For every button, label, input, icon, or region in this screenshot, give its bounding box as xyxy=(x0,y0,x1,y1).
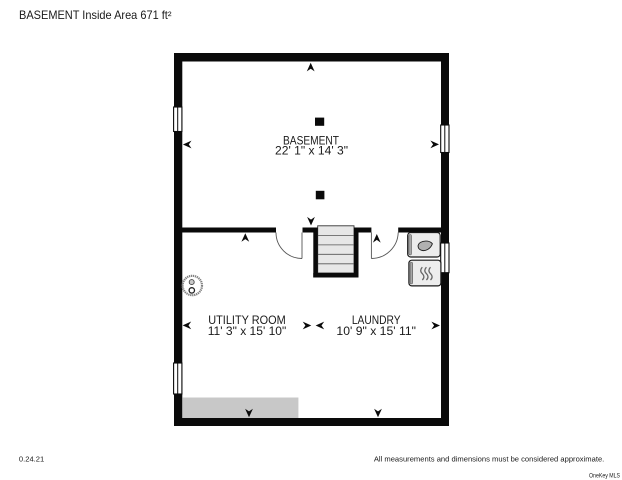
svg-text:All measurements and dimension: All measurements and dimensions must be … xyxy=(374,455,604,464)
svg-text:11' 3" x 15' 10": 11' 3" x 15' 10" xyxy=(208,325,287,338)
svg-text:10' 9" x 15' 11": 10' 9" x 15' 11" xyxy=(336,325,416,338)
svg-text:OneKey MLS: OneKey MLS xyxy=(589,473,620,480)
svg-text:BASEMENT Inside Area 671 ft²: BASEMENT Inside Area 671 ft² xyxy=(19,9,172,22)
svg-text:0.24.21: 0.24.21 xyxy=(19,454,44,463)
svg-text:22' 1" x 14' 3": 22' 1" x 14' 3" xyxy=(275,145,348,158)
